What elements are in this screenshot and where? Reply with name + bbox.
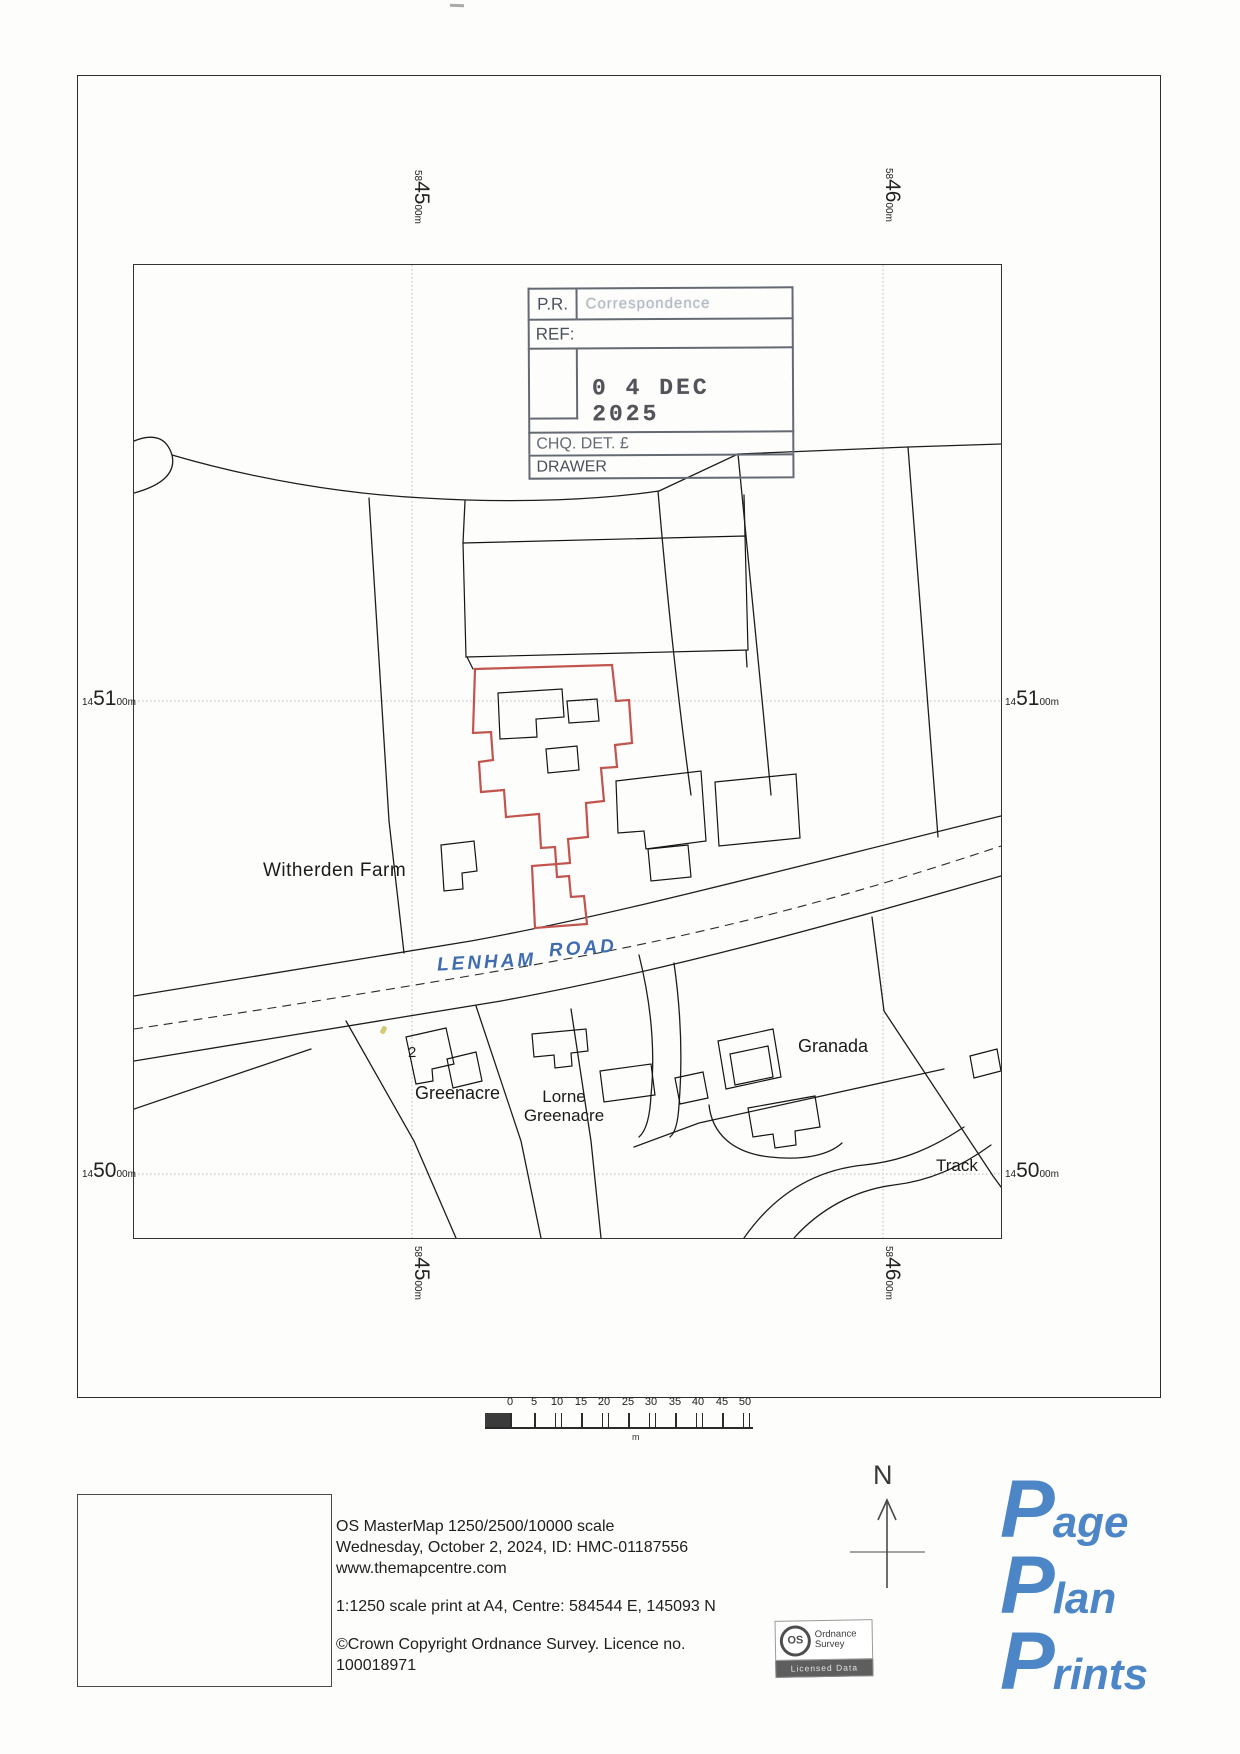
receipt-stamp: P.R. Correspondence REF: 0 4 DEC 2025 CH… [527, 286, 794, 479]
logo-rest-2: lan [1053, 1574, 1117, 1623]
boundary-connectors [463, 495, 747, 669]
boundary-granada-east [872, 917, 1001, 1187]
boundary-greenacre-west [346, 1021, 456, 1238]
os-logo-icon: OS [780, 1625, 812, 1657]
label-lorne-greenacre-line2: Greenacre [516, 1106, 612, 1125]
scale-tick [743, 1413, 750, 1428]
building-barn [463, 536, 748, 657]
stamp-empty-cell [530, 349, 578, 419]
scale-tick-label: 50 [739, 1396, 751, 1408]
logo-rest-1: age [1053, 1498, 1129, 1547]
scale-tick-label: 35 [669, 1396, 681, 1408]
scale-tick [675, 1413, 677, 1428]
building-granada-house [718, 1029, 781, 1089]
scale-tick [555, 1413, 562, 1428]
scale-tick-label: 45 [716, 1396, 728, 1408]
boundary-farm-east [658, 491, 691, 795]
north-label: N [873, 1460, 893, 1491]
os-name-line2: Survey [815, 1639, 857, 1650]
building-outbuilding-2 [546, 746, 579, 773]
scale-tick [602, 1413, 609, 1428]
building-farmhouse [498, 689, 564, 739]
grid-label-easting-1-top: 584500m [411, 170, 432, 224]
boundary-pond [134, 437, 173, 493]
boundary-right-parcel-west [738, 454, 771, 795]
stamp-pr-value: Correspondence [578, 295, 711, 313]
building-outbuilding-1 [567, 699, 599, 723]
building-east-barn [715, 774, 800, 846]
footer-print-info: 1:1250 scale print at A4, Centre: 584544… [336, 1596, 936, 1617]
building-east-cluster [616, 771, 706, 849]
building-track-shed [970, 1049, 1001, 1078]
scale-tick-label: 25 [622, 1396, 634, 1408]
notes-box [77, 1494, 332, 1687]
building-west-lshape [441, 841, 477, 891]
scale-tick-label: 15 [575, 1396, 587, 1408]
scale-bar-filled-block [485, 1413, 510, 1428]
scale-tick-label: 5 [531, 1396, 537, 1408]
scale-tick-label: 10 [551, 1396, 563, 1408]
label-plot-number: 2 [408, 1044, 416, 1061]
scale-bar-baseline [485, 1427, 753, 1429]
stamp-drawer-label: DRAWER [528, 453, 794, 479]
scale-tick-label: 30 [645, 1396, 657, 1408]
scale-bar: 0 5 10 15 20 25 30 35 40 45 50 m [470, 1392, 770, 1448]
footer-date-id: Wednesday, October 2, 2024, ID: HMC-0118… [336, 1537, 936, 1558]
driveway-lines [639, 955, 681, 1137]
label-road-handwritten: ROAD [548, 936, 617, 963]
label-lorne: Lorne [516, 1087, 612, 1106]
stamp-pr-label: P.R. [530, 289, 578, 318]
building-granada-roof [730, 1046, 773, 1085]
footer-website: www.themapcentre.com [336, 1558, 936, 1579]
scale-tick-label: 40 [692, 1396, 704, 1408]
page-plan-prints-logo: Page Plan Prints [1000, 1472, 1220, 1700]
scale-tick [581, 1413, 583, 1428]
stamp-ref-label: REF: [528, 317, 794, 347]
boundary-farm-west [369, 498, 404, 953]
grid-label-northing-2-right: 145000m [1005, 1160, 1059, 1181]
label-witherden-farm: Witherden Farm [263, 860, 406, 882]
scale-tick [628, 1413, 630, 1428]
logo-initial-3: P [1000, 1616, 1053, 1707]
label-greenacre: Greenacre [415, 1083, 500, 1104]
os-licensed-data-banner: Licensed Data [775, 1659, 873, 1678]
stamp-date-row: 0 4 DEC 2025 [528, 346, 794, 431]
scale-tick [510, 1413, 512, 1428]
scale-tick-label: 20 [598, 1396, 610, 1408]
label-granada: Granada [798, 1036, 868, 1057]
date-stamp: 0 4 DEC 2025 [592, 374, 792, 427]
scale-unit-label: m [632, 1432, 640, 1442]
grid-label-northing-2-left: 145000m [82, 1160, 136, 1181]
scan-artifact [450, 4, 464, 7]
label-track: Track [936, 1156, 978, 1176]
grid-label-easting-1-bottom: 584500m [411, 1246, 432, 1300]
plot-boundary-red [473, 665, 632, 928]
scale-tick [649, 1413, 656, 1428]
scale-tick-label: 0 [507, 1396, 513, 1408]
label-lorne-greenacre: Lorne Greenacre [516, 1087, 612, 1125]
scale-tick [534, 1413, 536, 1428]
ordnance-survey-badge: OS Ordnance Survey Licensed Data [775, 1619, 874, 1678]
road-edge-south [134, 876, 1001, 1061]
boundary-sw-wedge [134, 1049, 311, 1109]
track-edge-a [744, 1127, 964, 1238]
granada-enclosure [709, 1105, 842, 1158]
scale-tick [722, 1413, 724, 1428]
boundary-right-parcel-east [908, 447, 938, 837]
logo-rest-3: rints [1053, 1650, 1148, 1699]
grid-label-easting-2-bottom: 584600m [882, 1246, 903, 1300]
scale-tick [696, 1413, 703, 1428]
stamp-chq-label: CHQ. DET. £ [536, 435, 629, 453]
building-east-annex [648, 845, 691, 881]
grid-label-northing-1-left: 145100m [82, 688, 136, 709]
scanned-map-page: P.R. Correspondence REF: 0 4 DEC 2025 CH… [0, 0, 1240, 1754]
grid-label-northing-1-right: 145100m [1005, 688, 1059, 709]
grid-label-easting-2-top: 584600m [882, 168, 903, 222]
footer-product: OS MasterMap 1250/2500/10000 scale [336, 1516, 936, 1537]
